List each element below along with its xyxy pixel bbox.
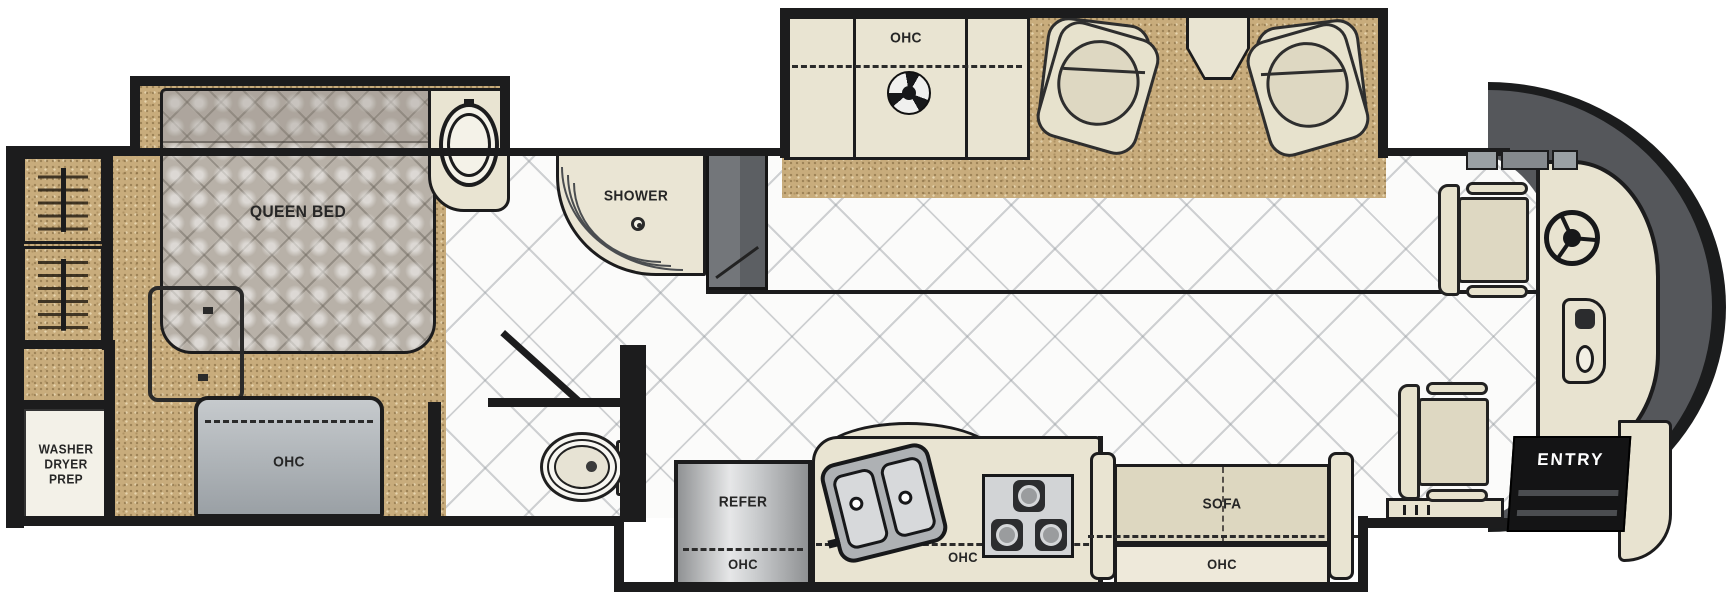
sofa-ohc-label: OHC bbox=[1207, 556, 1237, 572]
closet-wall bbox=[20, 340, 114, 349]
closet-wall bbox=[102, 152, 113, 350]
toilet-room-wall bbox=[488, 398, 630, 407]
dinette-ohc-label: OHC bbox=[890, 30, 922, 47]
console-module bbox=[1552, 150, 1578, 170]
refer-ohc-dashed-line bbox=[683, 548, 803, 551]
dinette-slideout-wall-left bbox=[780, 8, 790, 158]
top-wall bbox=[6, 146, 140, 156]
washer-closet-wall bbox=[20, 400, 114, 409]
bed-slideout-wall-right bbox=[500, 76, 510, 156]
overhead-console bbox=[1466, 150, 1588, 172]
entry-label: ENTRY bbox=[1513, 450, 1628, 470]
dinette-slideout-wall-right bbox=[1378, 8, 1388, 158]
trim-tick bbox=[1403, 505, 1406, 515]
seat-armrest bbox=[1466, 182, 1528, 195]
stove-burner-icon bbox=[1013, 480, 1045, 512]
cabinet-divider bbox=[853, 19, 856, 157]
rv-floorplan: ENTRY WASHER DRYER PREP QUEEN BED SHOWER… bbox=[0, 0, 1730, 600]
bed-slideout-wall-left bbox=[130, 76, 140, 156]
cockpit-console-cabinet bbox=[1562, 298, 1606, 384]
dinette-ohc-dashed-line bbox=[792, 65, 1022, 68]
vanity-faucet-icon bbox=[464, 99, 474, 106]
bed-pillow-area bbox=[163, 91, 433, 143]
sofa-label: SOFA bbox=[1202, 496, 1241, 513]
bottom-wall bbox=[6, 516, 622, 526]
washer-dryer-prep-label: WASHER DRYER PREP bbox=[39, 442, 94, 487]
cabinet-divider bbox=[965, 19, 968, 157]
dinette-slideout-wall-top bbox=[780, 8, 1388, 18]
seat-cushion bbox=[1418, 398, 1489, 486]
nightstand-lamp-icon bbox=[203, 307, 213, 314]
washer-closet-wall bbox=[104, 340, 115, 526]
entry-step-line bbox=[1518, 490, 1619, 496]
vanity-sink-inner-ring bbox=[447, 113, 491, 177]
seat-back bbox=[1438, 184, 1460, 296]
refer-label: REFER bbox=[719, 494, 768, 511]
seat-armrest bbox=[1466, 285, 1528, 298]
console-tray-icon bbox=[1576, 345, 1594, 373]
nightstand bbox=[148, 286, 244, 402]
vent-fan-icon bbox=[887, 71, 931, 115]
galley-wall-bottom bbox=[614, 582, 1368, 592]
bedroom-ohc-label: OHC bbox=[273, 454, 305, 471]
toilet-room-wall bbox=[620, 345, 646, 522]
cooktop-stove bbox=[982, 474, 1074, 558]
bedroom-bath-divider-wall bbox=[428, 402, 441, 522]
toilet-bowl bbox=[554, 445, 610, 489]
bed-slideout-wall-top bbox=[130, 76, 510, 86]
seat-back bbox=[1398, 384, 1420, 500]
seat-armrest bbox=[1426, 489, 1488, 502]
stove-burner-icon bbox=[1035, 519, 1067, 551]
stove-burner-icon bbox=[991, 519, 1023, 551]
galley-wall-left bbox=[614, 516, 624, 592]
console-module bbox=[1501, 150, 1549, 170]
slideout-floor-line bbox=[706, 290, 1552, 294]
console-module bbox=[1466, 150, 1498, 170]
queen-bed-label: QUEEN BED bbox=[250, 202, 346, 222]
trim-tick bbox=[1427, 505, 1430, 515]
sofa-armrest-left bbox=[1090, 452, 1116, 580]
cupholder-icon bbox=[1575, 309, 1595, 329]
seat-armrest bbox=[1426, 382, 1488, 395]
wardrobe-shelves-upper bbox=[22, 156, 104, 244]
sofa-armrest-right bbox=[1328, 452, 1354, 580]
sink-faucet-icon bbox=[827, 538, 841, 549]
toilet-flush-icon bbox=[586, 461, 597, 472]
sofa-slide-dashed-line bbox=[1088, 535, 1360, 538]
top-wall bbox=[138, 148, 788, 156]
wardrobe-panel bbox=[740, 151, 765, 287]
refer-ohc-label: OHC bbox=[728, 556, 758, 572]
bedroom-ohc-dashed-line bbox=[205, 420, 372, 423]
entry-step-line bbox=[1517, 510, 1618, 516]
nightstand-switch-icon bbox=[198, 374, 208, 381]
shower-drain-icon bbox=[631, 217, 645, 231]
trim-tick bbox=[1415, 505, 1418, 515]
wardrobe-shelves-lower bbox=[22, 246, 104, 344]
passenger-seat bbox=[1398, 384, 1502, 500]
kitchen-ohc-label: OHC bbox=[948, 549, 978, 565]
steering-wheel-icon bbox=[1544, 210, 1600, 266]
entry-steps: ENTRY bbox=[1507, 436, 1632, 532]
rear-wall bbox=[6, 146, 24, 528]
seat-cushion bbox=[1458, 197, 1529, 282]
linen-wardrobe-cabinet bbox=[706, 148, 768, 290]
driver-seat bbox=[1438, 184, 1542, 296]
shower-label: SHOWER bbox=[604, 188, 668, 205]
